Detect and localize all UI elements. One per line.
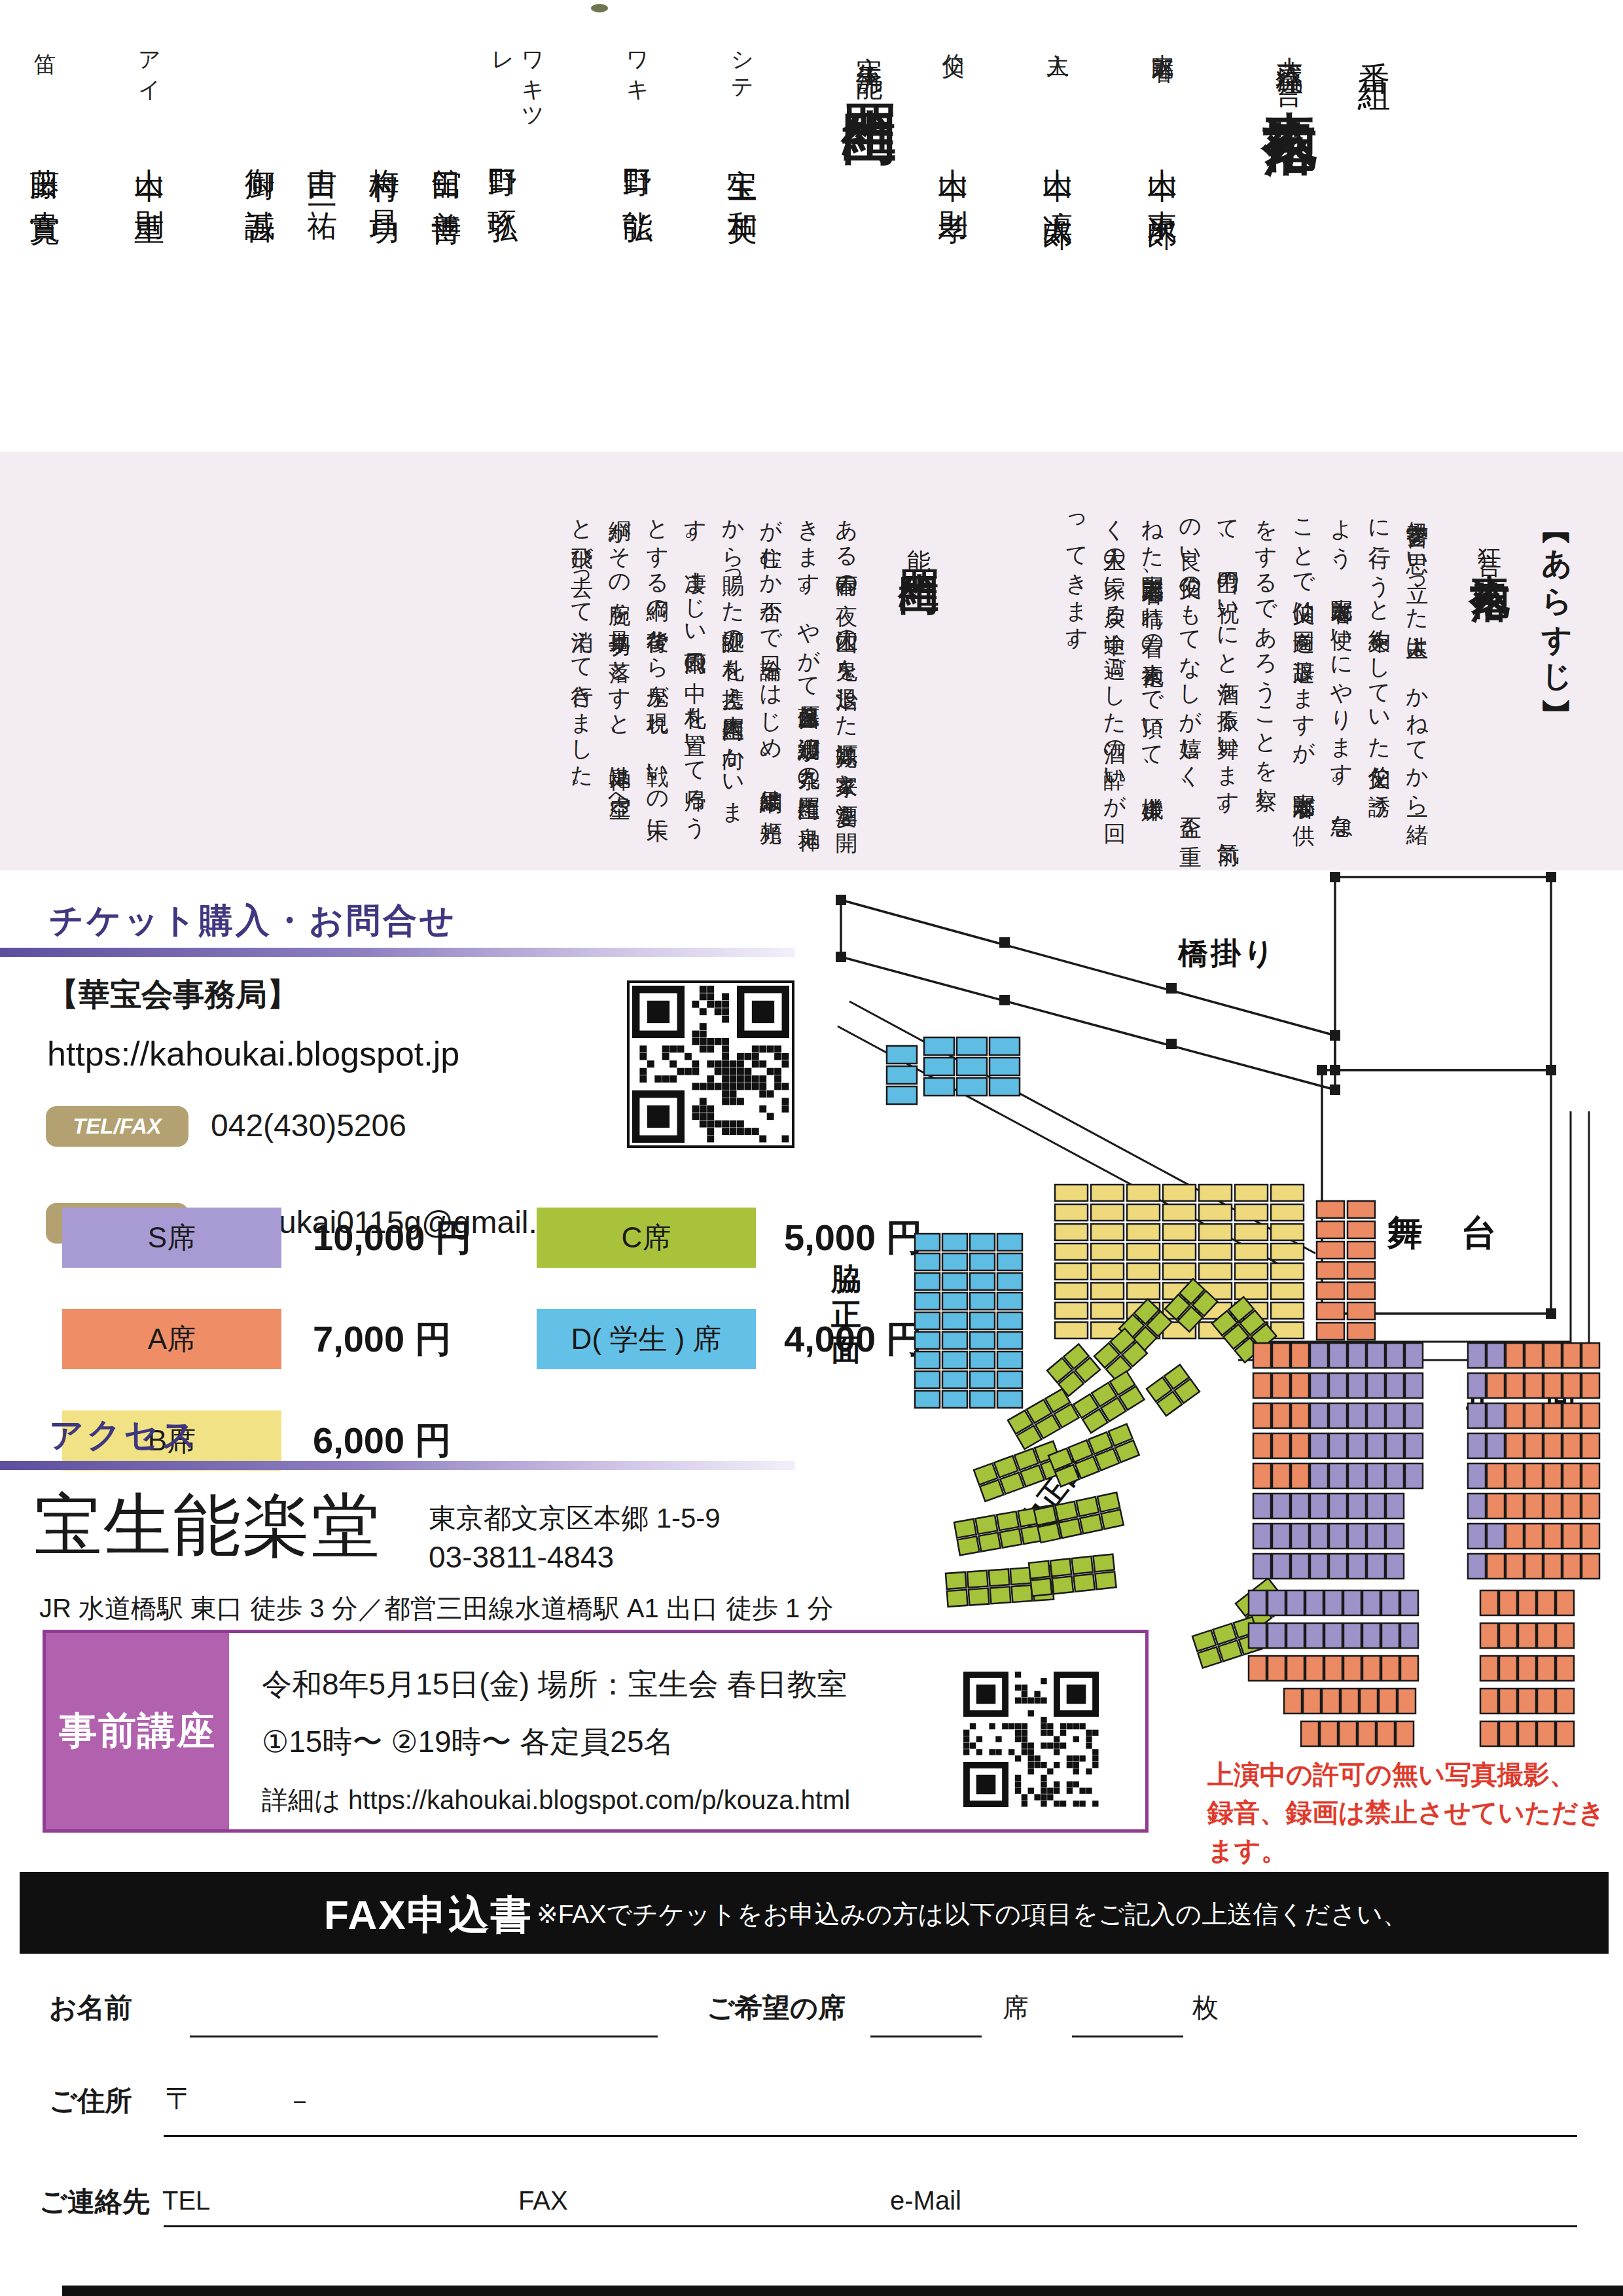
cast-column: 伯父 山本 則孝 [933,36,1020,445]
fax-address-field[interactable] [164,2135,1577,2137]
ticket-qr-code [627,980,794,1148]
cast-column: 主人 山本 凜太郎 [1037,36,1125,445]
cast-name: 山本 則重 [133,145,166,194]
fax-postal-mark: 〒 [165,2079,195,2119]
kyogen-title: 素袍落 [1259,66,1320,82]
program-section: 番組 大蔵流 狂言 素袍落 太郎冠者 山本 東次郎 主人 山本 凜太郎 伯父 山… [26,36,1593,445]
synopsis-heading: 【あらすじ】 [1537,524,1577,831]
cast-name: 野口 琢弘 [486,145,520,194]
synopsis-kyogen-genre: 狂言 [1476,530,1503,538]
seating-chart: 橋掛り舞 台正 面脇正面中正面 [811,870,1623,1787]
lecture-box-title: 事前講座 [46,1633,229,1829]
venue-phone: 03-3811-4843 [429,1539,614,1575]
seatmap-label: 舞 台 [1387,1213,1511,1252]
cast-role-label: 伯父 [938,36,968,142]
synopsis-kyogen-title: 狂言 素袍落 [1462,488,1517,831]
fax-form-title: FAX申込書 [324,1888,533,1943]
venue-address: 東京都文京区本郷 1-5-9 [429,1500,721,1537]
cast-name: 梅村 昌功 [368,145,401,194]
cast-name: 宝生 和英 [726,145,759,194]
seatmap-label: 橋掛り [1177,936,1277,970]
cast-role-label: シテ [727,36,757,142]
cast-column: 太郎冠者 山本 東次郎 [1142,36,1230,445]
cast-role-label: アイ [134,36,164,142]
fax-postal-dash: － [287,2083,313,2119]
fax-address-label: ご住所 [49,2083,132,2119]
cast-column: 舘田 善博 [420,36,473,445]
seat-block [887,1046,917,1104]
scan-speck [591,4,608,12]
seatmap-label: 脇 [830,1262,861,1296]
access-heading-rule [0,1461,795,1470]
seatmap-label: 面 [830,1333,861,1367]
kyogen-title-column: 大蔵流 狂言 素袍落 [1252,36,1327,445]
cast-name: 山本 東次郎 [1146,145,1179,198]
telfax-badge: TEL/FAX [46,1106,188,1147]
cast-name: 野口 能弘 [621,145,654,194]
seat-block [1147,1365,1200,1416]
kyogen-genre: 狂言 [1274,50,1304,63]
cast-role-label: 笛 [29,36,60,142]
telfax-number: 042(430)5206 [211,1107,406,1143]
lecture-detail-url: 詳細は https://kahoukai.blogspot.com/p/kouz… [262,1782,850,1818]
noh-title: 羅生門 [839,60,900,75]
cast-name: 吉田 祐一 [306,145,339,194]
cast-name: 山本 則孝 [936,145,970,194]
fax-contact-field[interactable] [164,2225,1577,2227]
cast-column: 吉田 祐一 [296,36,348,445]
cast-name: 藤田 貴寛 [28,145,62,194]
synopsis-noh-body: ある春雨の夜、大江山の鬼を退治した源頼光は家来と酒宴を開きます。やがて藤原保昌と… [563,504,865,831]
fax-count-unit: 枚 [1192,1990,1219,2026]
noh-genre: 能 [854,50,884,57]
seat-block [1048,1424,1139,1487]
cast-column: 笛 藤田 貴寛 [24,36,112,445]
cast-name: 御厨 誠吾 [243,145,277,194]
venue-route: JR 水道橋駅 東口 徒歩 3 分／都営三田線水道橋駅 A1 出口 徒歩 1 分 [39,1590,833,1626]
cast-name: 山本 凜太郎 [1041,145,1075,198]
fax-form-header: FAX申込書 ※FAXでチケットをお申込みの方は以下の項目をご記入の上送信くださ… [20,1872,1609,1954]
fax-seat-label: ご希望の席 [707,1990,846,2026]
seat-block [1029,1554,1116,1596]
fax-name-field[interactable] [190,2036,658,2037]
lecture-times: ①15時〜 ②19時〜 各定員25名 [262,1722,674,1763]
noh-title-column: 宝生流 能 羅生門 [832,36,906,445]
ticket-heading: チケット購入・お問合せ [49,898,457,944]
seatmap-label: 正 [830,1297,861,1331]
lecture-date-place: 令和8年5月15日(金) 場所：宝生会 春日教室 [262,1664,847,1705]
price-seat-label: A席 [62,1309,281,1369]
cast-name: 舘田 善博 [430,145,463,194]
synopsis-kyogen-body: 伊勢参宮を思い立った主人は、かねてから一緒に行こうと約束をしていた伯父を誘うよう… [1058,504,1436,831]
cast-column: ワキ 野口 能弘 [617,36,705,445]
seat-block [1317,1201,1375,1340]
cast-role-label: 太郎冠者 [1147,36,1177,142]
seat-block [915,1234,1022,1408]
price-seat-label: S席 [62,1208,281,1268]
seat-block [924,1037,1020,1096]
website-url: https://kahoukai.blogspot.jp [47,1034,459,1073]
cast-column: アイ 山本 則重 [129,36,217,445]
fax-contact-label: ご連絡先 [39,2183,150,2220]
page-edge-strip [62,2286,1623,2296]
noh-school: 宝生流 [855,36,884,48]
cast-column: シテ 宝生 和英 [722,36,810,445]
cast-column: 梅村 昌功 [358,36,410,445]
price-seat-label: C席 [537,1208,756,1268]
price-value: 10,000 円 [313,1208,472,1268]
fax-seat-unit: 席 [1003,1990,1029,2026]
price-seat-label: D( 学生 ) 席 [537,1309,756,1369]
price-value: 7,000 円 [313,1309,452,1369]
access-heading: アクセス [49,1412,199,1458]
fax-form-note: ※FAXでチケットをお申込みの方は以下の項目をご記入の上送信ください、 [537,1897,1408,1932]
cast-role-label: ワキ [622,36,652,142]
synopsis-noh-title: 能 羅生門 [891,488,946,831]
program-heading: 番組 [1353,36,1397,445]
fax-seat-field[interactable] [870,2036,982,2037]
cast-column: 小鼓 幸 信吾 [0,36,7,445]
synopsis-kyogen-name: 素袍落 [1467,541,1512,552]
synopsis-noh-name: 羅生門 [897,537,941,548]
seat-block [1047,1344,1100,1397]
synopsis-noh-genre: 能 [906,530,932,534]
ticket-heading-rule [0,948,795,957]
fax-name-label: お名前 [49,1990,132,2026]
cast-role-label: ワキツレ [488,36,548,142]
venue-name: 宝生能楽堂 [34,1480,381,1572]
synopsis-section: 【あらすじ】 狂言 素袍落 伊勢参宮を思い立った主人は、かねてから一緒に行こうと… [46,488,1577,831]
flyer-page: 番組 大蔵流 狂言 素袍落 太郎冠者 山本 東次郎 主人 山本 凜太郎 伯父 山… [0,0,1623,2296]
fax-tel-label: TEL [162,2186,210,2215]
fax-count-field[interactable] [1072,2036,1183,2037]
cast-column: ワキツレ 野口 琢弘 [482,36,600,445]
office-name: 【華宝会事務局】 [47,974,298,1016]
cast-role-label: 主人 [1043,36,1073,142]
kyogen-school: 大蔵流 [1275,36,1304,48]
synopsis-band: 【あらすじ】 狂言 素袍落 伊勢参宮を思い立った主人は、かねてから一緒に行こうと… [0,452,1623,870]
cast-column: 御厨 誠吾 [234,36,286,445]
fax-fax-label: FAX [518,2186,568,2215]
fax-email-label: e-Mail [890,2186,961,2215]
